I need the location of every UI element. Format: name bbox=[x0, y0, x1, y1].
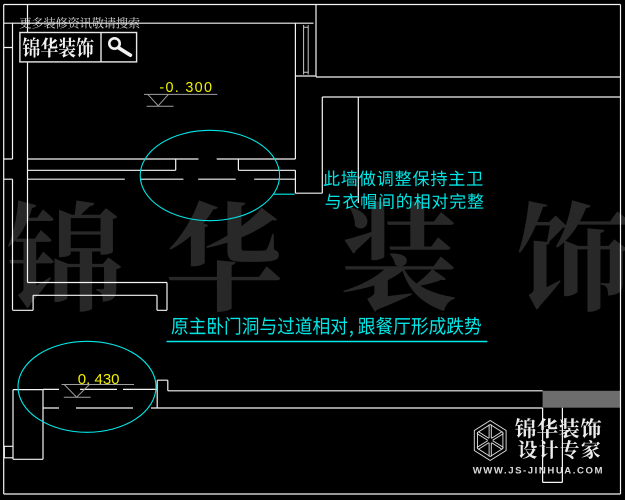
svg-text:0. 430: 0. 430 bbox=[78, 371, 120, 388]
svg-text:WWW.JS-JINHUA.COM: WWW.JS-JINHUA.COM bbox=[473, 466, 604, 477]
svg-text:-0. 300: -0. 300 bbox=[159, 80, 213, 96]
